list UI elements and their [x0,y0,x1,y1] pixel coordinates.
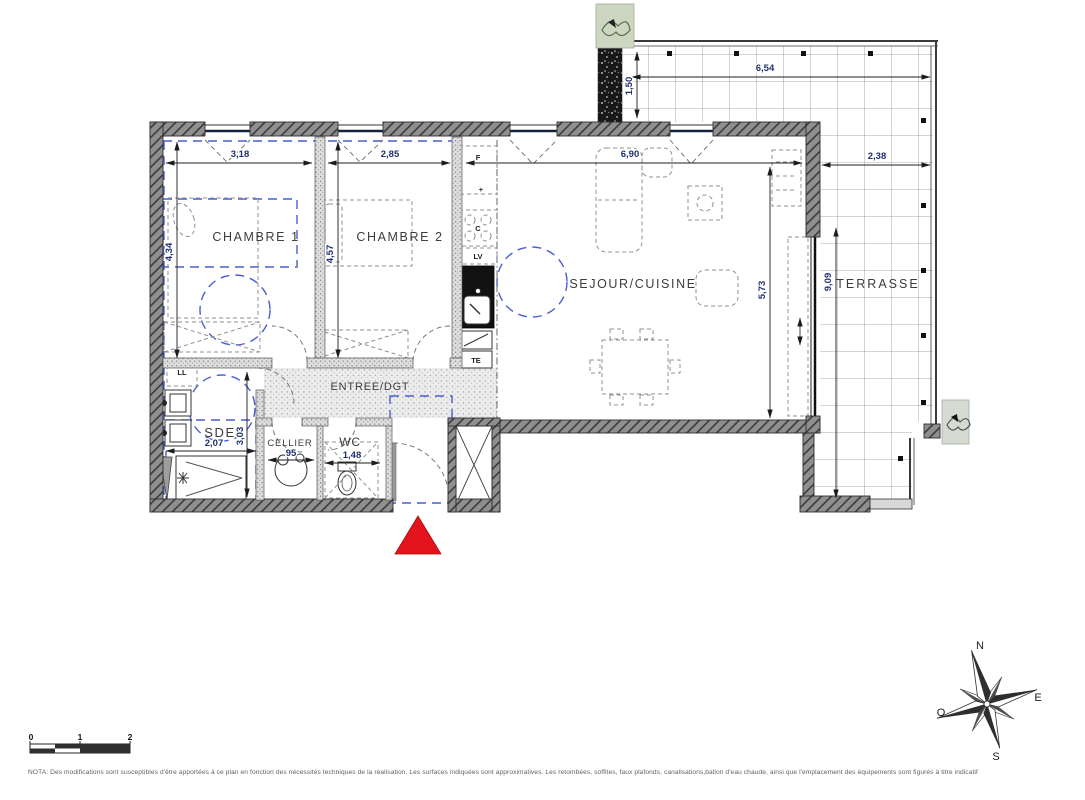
dim-chambre1-height: 4,34 [164,142,177,358]
plant-top [596,4,634,48]
washing-machine-label: LL [177,368,187,377]
scale-bar: 0 1 2 [29,732,133,753]
dim-text-terrasse-top-width: 6,54 [756,63,775,74]
compass-north-label: N [976,640,984,652]
scale-tick-1: 1 [78,732,83,742]
electrical-panel-label: TE [471,356,481,365]
fridge-label: F [476,153,481,162]
dim-sejour-height: 5,73 [757,167,770,418]
dim-cellier-width: 95 [268,448,314,460]
plant-right [942,400,970,444]
dim-text-cellier-width: 95 [286,448,297,459]
sde-label: SDE [204,425,236,440]
dim-text-terrasse-side-length: 9,09 [823,273,834,292]
dim-sejour-width: 6,90 [466,149,802,163]
compass-west-label: O [937,707,946,719]
dim-text-sde-height: 3,03 [235,427,246,446]
plus-mark: + [479,185,484,194]
entrance-marker [395,516,441,554]
dishwasher-label: LV [473,252,482,261]
dim-text-sejour-height: 5,73 [757,281,768,300]
scale-tick-0: 0 [29,732,34,742]
dim-wc-width: 1,48 [325,450,380,463]
dim-text-sejour-width: 6,90 [621,149,640,160]
compass-south-label: S [992,751,999,763]
dim-text-terrasse-top-depth: 1,50 [624,77,635,96]
chambre1-label: CHAMBRE 1 [212,230,299,244]
dim-text-wc-width: 1,48 [343,450,362,461]
floor-plan-canvas: 3,18 2,85 6,90 6,54 1,50 2,38 9,09 4,34 … [0,0,1085,800]
floor-plan-drawing: 3,18 2,85 6,90 6,54 1,50 2,38 9,09 4,34 … [0,0,1085,800]
compass-rose: N E S O [922,636,1050,763]
entree-label: ENTREE/DGT [331,381,410,393]
dim-text-terrasse-side-width: 2,38 [868,151,887,162]
dim-text-chambre1-height: 4,34 [164,242,175,261]
dim-text-chambre1-width: 3,18 [231,149,250,160]
compass-east-label: E [1034,692,1041,704]
walls-layer [150,122,870,512]
dim-chambre2-width: 2,85 [328,149,450,163]
dim-text-chambre2-width: 2,85 [381,149,400,160]
entree-floor [264,368,497,418]
chambre2-label: CHAMBRE 2 [356,230,443,244]
dim-chambre2-height: 4,57 [325,142,338,358]
nota-disclaimer: NOTA: Des modifications sont susceptible… [28,769,1058,776]
dim-chambre1-width: 3,18 [166,149,312,163]
cellier-label: CELLIER [267,438,312,449]
wc-label: WC [339,435,361,449]
terrasse-label: TERRASSE [836,277,919,291]
hob-label: C [475,224,481,233]
scale-tick-2: 2 [128,732,133,742]
dim-text-chambre2-height: 4,57 [325,245,336,264]
sejour-cuisine-label: SEJOUR/CUISINE [569,277,696,291]
